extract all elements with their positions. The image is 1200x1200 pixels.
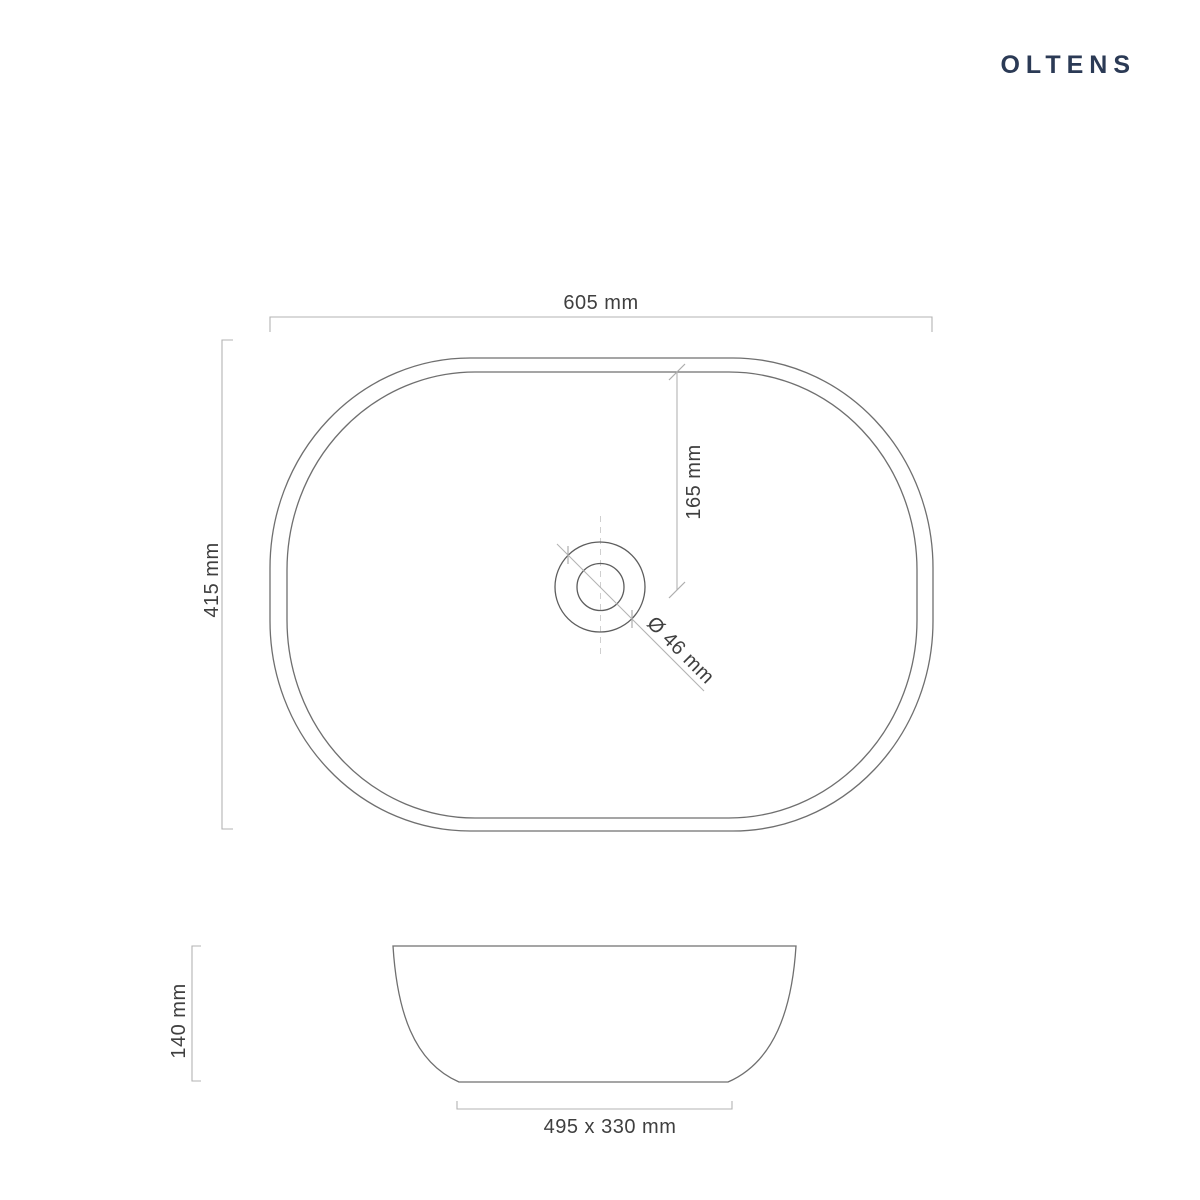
dimension-base-bracket: [457, 1101, 732, 1109]
dimension-side-height-bracket: [192, 946, 201, 1081]
basin-outer-edge: [270, 358, 933, 831]
dimension-width-label: 605 mm: [563, 292, 638, 314]
dimension-height-label: 415 mm: [201, 542, 223, 617]
technical-drawing-page: OLTENS 605 mm 415 mm 165 mm Ø 46 mm 140 …: [0, 0, 1200, 1200]
dimension-height-bracket: [222, 340, 233, 829]
dimension-base-label: 495 x 330 mm: [544, 1116, 677, 1138]
brand-logo: OLTENS: [1000, 51, 1136, 79]
basin-inner-rim: [287, 372, 917, 818]
dimension-drain-offset-label: 165 mm: [683, 444, 705, 519]
dimension-side-height-label: 140 mm: [168, 983, 190, 1058]
dimension-drain-diameter-line: [557, 544, 704, 691]
washbasin-dimension-drawing: OLTENS 605 mm 415 mm 165 mm Ø 46 mm 140 …: [0, 0, 1200, 1200]
basin-side-profile: [393, 946, 796, 1082]
dimension-drain-diameter-label: Ø 46 mm: [642, 612, 718, 688]
dimension-width-bracket: [270, 317, 932, 332]
